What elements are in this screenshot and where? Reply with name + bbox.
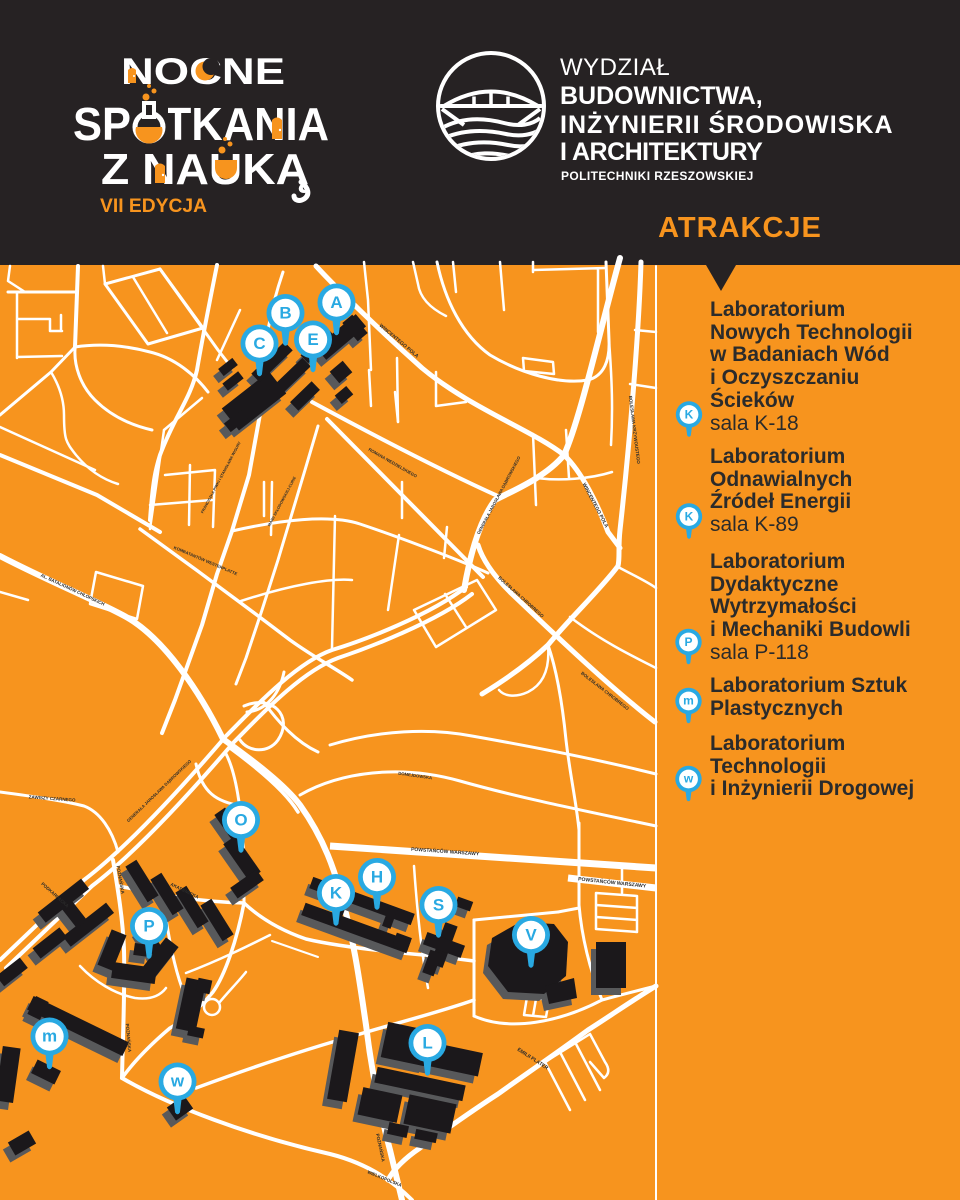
svg-text:m: m xyxy=(683,694,694,708)
svg-text:L: L xyxy=(422,1034,432,1053)
svg-text:K: K xyxy=(330,884,343,903)
svg-text:w: w xyxy=(683,772,694,786)
svg-text:w: w xyxy=(170,1072,185,1091)
svg-text:K: K xyxy=(685,510,694,524)
svg-text:H: H xyxy=(371,868,383,887)
svg-text:GENERAŁA JAROSŁAWA DĄBROWSKIEG: GENERAŁA JAROSŁAWA DĄBROWSKIEGO xyxy=(476,455,522,535)
svg-text:P: P xyxy=(143,917,154,936)
svg-text:S: S xyxy=(433,896,444,915)
svg-text:Z NAUKĄ: Z NAUKĄ xyxy=(101,145,309,194)
svg-text:m: m xyxy=(42,1027,57,1046)
svg-text:SPOTKANIA: SPOTKANIA xyxy=(73,98,329,150)
svg-text:DOMEJDOWSKA: DOMEJDOWSKA xyxy=(398,771,432,781)
svg-text:V: V xyxy=(525,926,537,945)
svg-text:WINCENTEGO POLA: WINCENTEGO POLA xyxy=(378,323,420,360)
svg-text:BOLESŁAWA CHROBREGO: BOLESŁAWA CHROBREGO xyxy=(580,671,630,712)
svg-text:POWSTAŃCÓW WARSZAWY: POWSTAŃCÓW WARSZAWY xyxy=(578,874,647,889)
svg-text:B: B xyxy=(279,304,291,323)
svg-text:A: A xyxy=(330,293,342,312)
svg-text:E: E xyxy=(307,330,318,349)
svg-text:C: C xyxy=(253,334,265,353)
svg-text:BOLESŁAWA CHROBREGO: BOLESŁAWA CHROBREGO xyxy=(497,575,545,619)
svg-text:VII EDYCJA: VII EDYCJA xyxy=(100,196,207,217)
svg-text:FRANCISZKA PIWKI I STANISŁAWA: FRANCISZKA PIWKI I STANISŁAWA WIGURY xyxy=(200,441,242,515)
svg-text:ROMANA NIEDZIELSKIEGO: ROMANA NIEDZIELSKIEGO xyxy=(368,447,419,479)
svg-text:P: P xyxy=(684,635,692,649)
svg-text:O: O xyxy=(234,811,247,830)
svg-text:ZAWISZY CZARNEGO: ZAWISZY CZARNEGO xyxy=(29,794,77,802)
svg-text:GENERAŁA JAROSŁAWA DĄBROWSKIEG: GENERAŁA JAROSŁAWA DĄBROWSKIEGO xyxy=(126,758,193,823)
svg-text:POZNAŃSKA: POZNAŃSKA xyxy=(125,1023,135,1053)
svg-text:K: K xyxy=(685,408,694,422)
svg-text:WINCENTEGO POLA: WINCENTEGO POLA xyxy=(581,482,610,529)
